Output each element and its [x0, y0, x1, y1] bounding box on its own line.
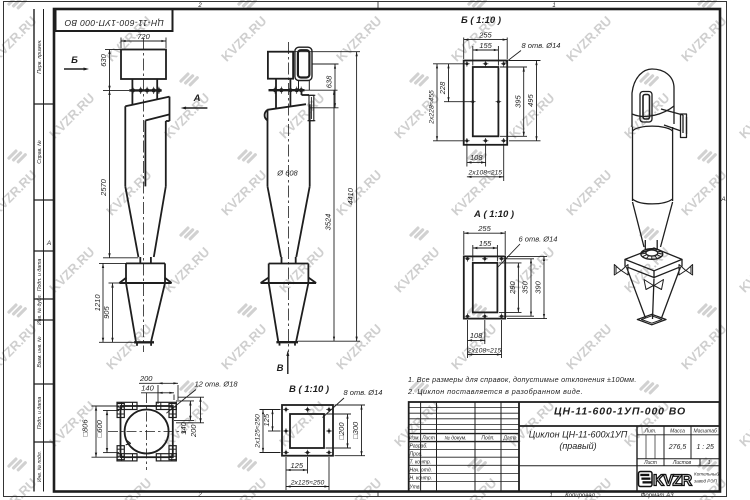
svg-text:3524: 3524 — [324, 214, 333, 231]
svg-text:А ( 1:10 ): А ( 1:10 ) — [473, 209, 514, 220]
svg-text:12 отв. Ø18: 12 отв. Ø18 — [194, 380, 238, 389]
svg-text:□300: □300 — [351, 421, 360, 439]
svg-text:8 отв. Ø14: 8 отв. Ø14 — [344, 388, 383, 397]
svg-text:KVZR.RU: KVZR.RU — [103, 321, 154, 372]
svg-text:KVZR.RU: KVZR.RU — [736, 244, 750, 295]
svg-text:№ докум.: № докум. — [444, 436, 466, 442]
svg-text:KVZR.RU: KVZR.RU — [218, 167, 269, 218]
svg-text:228: 228 — [438, 81, 447, 95]
svg-text:KVZR.RU: KVZR.RU — [333, 167, 384, 218]
svg-text:Лит.: Лит. — [644, 429, 657, 435]
svg-text:255: 255 — [478, 30, 492, 39]
svg-text:1210: 1210 — [93, 294, 102, 312]
svg-text:В ( 1:10 ): В ( 1:10 ) — [289, 384, 329, 395]
svg-text:Утв.: Утв. — [410, 485, 421, 491]
svg-text:(правый): (правый) — [559, 441, 596, 451]
svg-text:Котельный: Котельный — [694, 471, 719, 477]
svg-text:Масса: Масса — [670, 429, 685, 435]
svg-text:А: А — [193, 93, 201, 104]
svg-text:ЦН-11-600-1УП-000 ВО: ЦН-11-600-1УП-000 ВО — [64, 18, 164, 28]
svg-text:2x228≈455: 2x228≈455 — [429, 90, 436, 125]
svg-text:1. Все размеры для справок, до: 1. Все размеры для справок, допустимые о… — [408, 375, 637, 384]
svg-text:Перв. примен.: Перв. примен. — [37, 39, 43, 73]
svg-text:KVZR.RU: KVZR.RU — [103, 167, 154, 218]
svg-text:Подп. и дата: Подп. и дата — [37, 259, 43, 292]
svg-text:□806: □806 — [81, 419, 90, 437]
svg-text:Инв. № подл.: Инв. № подл. — [37, 451, 43, 482]
svg-text:1: 1 — [707, 460, 710, 466]
svg-text:Н. контр.: Н. контр. — [410, 476, 433, 482]
svg-text:KVZR.RU: KVZR.RU — [563, 167, 614, 218]
svg-text:395: 395 — [513, 95, 522, 108]
svg-text:630: 630 — [99, 53, 108, 66]
svg-text:Б ( 1:10 ): Б ( 1:10 ) — [461, 15, 501, 26]
svg-text:6 отв. Ø14: 6 отв. Ø14 — [519, 235, 558, 244]
svg-text:2x125≈250: 2x125≈250 — [255, 414, 262, 449]
svg-text:Листов: Листов — [672, 460, 692, 466]
svg-text:1: 1 — [552, 3, 555, 9]
svg-text:Б: Б — [71, 55, 78, 66]
svg-text:720: 720 — [137, 32, 150, 41]
svg-text:□600: □600 — [95, 419, 104, 437]
svg-text:Лист: Лист — [421, 436, 435, 442]
svg-text:140: 140 — [141, 383, 154, 392]
svg-text:Разраб.: Разраб. — [410, 444, 428, 450]
svg-text:KVZR.RU: KVZR.RU — [678, 321, 729, 372]
svg-text:KVZR.RU: KVZR.RU — [678, 167, 729, 218]
svg-text:KVZR.RU: KVZR.RU — [161, 244, 212, 295]
svg-text:KVZR.RU: KVZR.RU — [736, 90, 750, 141]
svg-text:KVZR.RU: KVZR.RU — [276, 90, 327, 141]
svg-text:2x125≈250: 2x125≈250 — [290, 479, 325, 486]
svg-text:KVZR.RU: KVZR.RU — [391, 244, 442, 295]
svg-text:Подп. и дата: Подп. и дата — [37, 397, 43, 430]
svg-text:KVZR.RU: KVZR.RU — [333, 321, 384, 372]
svg-text:Дата: Дата — [502, 436, 516, 442]
svg-text:350: 350 — [521, 280, 530, 293]
svg-text:276,5: 276,5 — [668, 444, 687, 451]
svg-text:Инв. № дубл.: Инв. № дубл. — [37, 294, 43, 325]
svg-text:KVZR.RU: KVZR.RU — [276, 244, 327, 295]
svg-text:108: 108 — [470, 331, 483, 340]
svg-text:4410: 4410 — [346, 187, 355, 205]
svg-text:255: 255 — [477, 224, 491, 233]
svg-text:Ø 608: Ø 608 — [276, 169, 298, 178]
svg-text:Формат А3: Формат А3 — [641, 493, 674, 499]
svg-text:2x108≈215: 2x108≈215 — [468, 170, 503, 177]
svg-text:Нач. отд.: Нач. отд. — [410, 468, 432, 474]
svg-text:140: 140 — [179, 421, 188, 434]
svg-text:KVZR.RU: KVZR.RU — [563, 321, 614, 372]
svg-text:1: 1 — [549, 493, 552, 499]
svg-text:495: 495 — [526, 94, 535, 107]
svg-text:2. Циклон поставляется в разоб: 2. Циклон поставляется в разобранном вид… — [407, 387, 583, 396]
svg-text:290: 290 — [508, 281, 517, 295]
svg-text:В: В — [277, 363, 284, 374]
svg-text:8 отв. Ø14: 8 отв. Ø14 — [522, 41, 561, 50]
svg-text:200: 200 — [139, 374, 153, 383]
svg-text:Подп.: Подп. — [481, 436, 494, 442]
svg-text:155: 155 — [479, 239, 492, 248]
svg-text:Изм.: Изм. — [409, 436, 420, 442]
svg-text:638: 638 — [325, 75, 334, 88]
svg-text:Т. контр.: Т. контр. — [410, 460, 432, 466]
svg-text:200: 200 — [189, 424, 198, 438]
svg-text:1 : 25: 1 : 25 — [696, 444, 714, 451]
svg-text:Циклон ЦН-11-600х1УП: Циклон ЦН-11-600х1УП — [529, 430, 628, 440]
svg-text:Копировал: Копировал — [565, 493, 595, 499]
svg-text:KVZR.RU: KVZR.RU — [333, 13, 384, 64]
svg-text:KVZR.RU: KVZR.RU — [678, 13, 729, 64]
svg-text:KVZR.RU: KVZR.RU — [736, 398, 750, 449]
svg-text:KVZR.RU: KVZR.RU — [218, 13, 269, 64]
svg-text:2570: 2570 — [99, 178, 108, 197]
svg-text:Пров.: Пров. — [410, 451, 423, 457]
svg-text:А: А — [720, 196, 725, 203]
svg-text:Взам. инв. №: Взам. инв. № — [37, 336, 43, 368]
svg-text:2x108≈215: 2x108≈215 — [467, 347, 502, 354]
svg-text:2: 2 — [197, 493, 202, 499]
svg-text:905: 905 — [102, 306, 111, 319]
svg-text:Справ. №: Справ. № — [37, 140, 43, 164]
svg-text:155: 155 — [479, 41, 492, 50]
svg-text:ЦН-11-600-1УП-000 ВО: ЦН-11-600-1УП-000 ВО — [554, 406, 686, 418]
svg-text:KVZR: KVZR — [653, 473, 692, 490]
svg-text:KVZR.RU: KVZR.RU — [218, 321, 269, 372]
svg-text:108: 108 — [470, 153, 483, 162]
svg-text:Лист: Лист — [643, 460, 657, 466]
svg-text:Масштаб: Масштаб — [694, 429, 718, 435]
svg-text:390: 390 — [534, 280, 543, 293]
svg-text:□200: □200 — [337, 422, 346, 440]
svg-text:2: 2 — [197, 3, 202, 9]
svg-text:125: 125 — [290, 461, 303, 470]
svg-text:завод РЭП: завод РЭП — [693, 479, 718, 484]
svg-text:125: 125 — [262, 413, 271, 426]
svg-text:KVZR.RU: KVZR.RU — [563, 13, 614, 64]
svg-text:А: А — [46, 240, 51, 247]
